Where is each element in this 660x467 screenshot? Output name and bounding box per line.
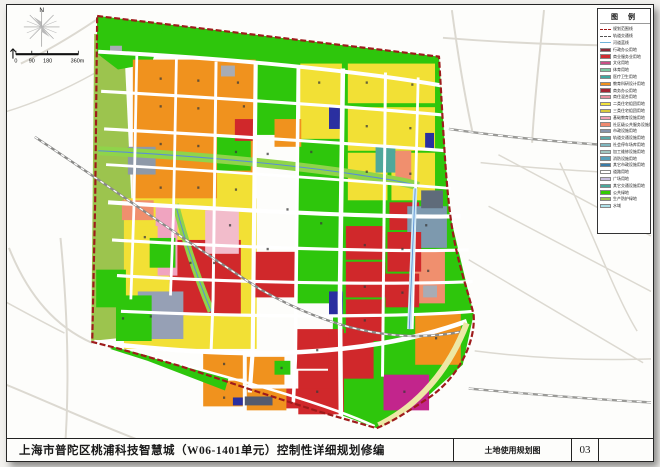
map-feature: 0 [14,59,17,65]
parcel-code-label [267,248,269,250]
parcel-code-label [320,222,322,224]
map-feature [421,190,443,208]
map-feature [61,238,68,456]
legend-item: 商务办公用地 [600,87,650,94]
parcel-code-label [409,127,411,129]
legend-label: 其它市政设施用地 [613,162,645,168]
parcel-code-label [364,244,366,246]
map-feature [423,286,437,298]
legend-swatch [600,54,611,58]
legend-label: 行政办公用地 [613,47,637,53]
legend-items: 规划范围线轨道交通线河道蓝线行政办公用地商业服务业用地文化用地体育用地医疗卫生用… [600,26,650,210]
map-feature [280,389,335,409]
legend-item: 公共绿地 [600,189,650,196]
parcel-code-label [237,81,239,83]
legend-item: 市政设施用地 [600,128,650,135]
legend-label: 广场用地 [613,176,629,182]
map-feature [469,260,643,363]
legend-swatch [600,68,611,72]
parcel-code-label [267,153,269,155]
legend-swatch [600,197,611,201]
map-feature [116,295,152,341]
legend-label: 道路用地 [613,169,629,175]
legend-swatch [600,82,611,86]
parcel-code-label [160,143,162,145]
sheet-number: 03 [571,439,598,461]
map-feature [328,333,374,379]
legend-item: 道路用地 [600,169,650,176]
legend-item: 社会停车场库用地 [600,142,650,149]
map-feature [9,248,92,343]
legend-swatch [600,36,611,37]
map-feature [7,383,155,446]
map-feature [346,262,386,298]
legend-label: 社区级公共服务设施用地 [613,122,651,128]
map-feature: N [39,7,44,14]
map-feature: 180 [43,59,52,65]
legend-item: 加工维修设施用地 [600,148,650,155]
legend-label: 教育科研设计用地 [613,81,645,87]
parcel-code-label [425,224,427,226]
legend-swatch [600,163,611,167]
parcel-code-label [366,171,368,173]
legend-label: 消防设施用地 [613,156,637,162]
legend-label: 市政设施用地 [613,128,637,134]
map-feature [233,397,243,405]
legend-item: 轨道交通设施用地 [600,135,650,142]
legend-item: 基础教育设施用地 [600,114,650,121]
legend-swatch [600,42,611,43]
legend-swatch [600,156,611,160]
legend-item: 商业服务业用地 [600,53,650,60]
legend-label: 社会停车场库用地 [613,142,645,148]
sheet-name: 土地使用规划图 [453,439,571,461]
legend-label: 其它交通设施用地 [613,183,645,189]
parcel-code-label [223,396,225,398]
parcel-code-label [144,236,146,238]
legend-swatch [600,143,611,147]
legend-item: 文化用地 [600,60,650,67]
parcel-code-label [411,83,413,85]
parcel-code-label [160,186,162,188]
map-feature [340,69,343,421]
legend-swatch [600,184,611,188]
legend-swatch [600,48,611,52]
parcel-code-label [427,270,429,272]
legend-swatch [600,102,611,106]
map-feature: 360m [71,59,85,65]
legend-label: 商住混合用地 [613,95,637,101]
parcel-code-label [189,262,191,264]
project-title: 上海市普陀区桃浦科技智慧城（W06-1401单元）控制性详细规划修编 [7,439,453,461]
legend-label: 商业服务业用地 [613,54,641,60]
parcel-code-label [213,262,215,264]
landuse-map: N090180360m [7,5,653,461]
legend-swatch [600,129,611,133]
legend-item: 教育科研设计用地 [600,80,650,87]
legend-swatch [600,95,611,99]
legend-item: 消防设施用地 [600,155,650,162]
legend-label: 二类住宅组团用地 [613,101,645,107]
map-feature [7,299,64,333]
legend-swatch [600,75,611,79]
map-feature [10,49,15,59]
legend-swatch [600,150,611,154]
title-bar: 上海市普陀区桃浦科技智慧城（W06-1401单元）控制性详细规划修编 土地使用规… [7,438,653,461]
map-feature [532,10,544,143]
parcel-code-label [401,291,403,293]
legend-item: 水域 [600,203,650,210]
legend-item: 医疗卫生用地 [600,74,650,81]
legend-item: 广场用地 [600,176,650,183]
legend-item: 二类住宅组团用地 [600,101,650,108]
legend-swatch [600,61,611,65]
map-feature [469,389,651,403]
legend-label: 公共绿地 [613,190,629,196]
legend-label: 轨道交通线 [613,33,633,39]
legend-item: 生产防护绿地 [600,196,650,203]
map-feature: 90 [29,59,35,65]
parcel-code-label [235,151,237,153]
legend-item: 轨道交通线 [600,33,650,40]
map-feature [425,133,434,150]
title-bar-blank-cell [598,439,653,461]
legend-label: 生产防护绿地 [613,196,637,202]
legend-swatch [600,177,611,181]
legend-item: 其它市政设施用地 [600,162,650,169]
map-feature [346,226,386,260]
parcel-code-label [364,319,366,321]
legend-swatch [600,190,611,194]
parcel-code-label [197,145,199,147]
map-feature [329,107,340,129]
legend-label: 加工维修设施用地 [613,149,645,155]
parcel-code-label [197,186,199,188]
parcel-code-label [280,367,282,369]
parcel-code-label [197,79,199,81]
legend-item: 社区级公共服务设施用地 [600,121,650,128]
legend-swatch [600,204,611,208]
legend-item: 行政办公用地 [600,46,650,53]
legend-item: 三类住宅组团用地 [600,108,650,115]
map-feature [217,173,253,203]
parcel-code-label [403,391,405,393]
parcel-code-label [229,224,231,226]
legend-label: 水域 [613,203,621,209]
parcel-code-label [286,208,288,210]
map-feature [7,73,94,113]
parcel-code-label [409,173,411,175]
legend-label: 医疗卫生用地 [613,74,637,80]
parcel-code-label [197,107,199,109]
plan-sheet: N090180360m 图 例 规划范围线轨道交通线河道蓝线行政办公用地商业服务… [6,4,654,462]
map-feature [452,10,473,133]
parcel-code-label [122,317,124,319]
legend-label: 体育用地 [613,67,629,73]
parcel-code-label [235,188,237,190]
legend-title: 图 例 [600,12,650,24]
map-feature [21,20,96,64]
parcel-code-label [435,337,437,339]
legend-swatch [600,88,611,92]
parcel-code-label [366,81,368,83]
legend-label: 商务办公用地 [613,88,637,94]
parcel-code-label [223,363,225,365]
legend-swatch [600,29,611,30]
legend-panel: 图 例 规划范围线轨道交通线河道蓝线行政办公用地商业服务业用地文化用地体育用地医… [597,8,651,234]
legend-item: 河道蓝线 [600,40,650,47]
legend-label: 河道蓝线 [613,40,629,46]
legend-item: 规划范围线 [600,26,650,33]
map-feature [245,396,273,405]
parcel-code-label [160,77,162,79]
map-feature [395,151,411,181]
legend-swatch [600,136,611,140]
parcel-code-label [310,151,312,153]
parcel-code-label [318,81,320,83]
legend-item: 商住混合用地 [600,94,650,101]
parcel-code-label [243,105,245,107]
legend-label: 轨道交通设施用地 [613,135,645,141]
map-feature [221,66,235,77]
legend-label: 规划范围线 [613,27,633,33]
legend-swatch [600,116,611,120]
parcel-code-label [316,391,318,393]
parcel-code-label [366,125,368,127]
parcel-code-label [150,315,152,317]
legend-item: 体育用地 [600,67,650,74]
legend-label: 文化用地 [613,61,629,67]
parcel-code-label [316,349,318,351]
legend-swatch [600,122,611,126]
parcel-code-label [364,286,366,288]
screenshot-root: { "title_bar": { "project_title": "上海市普陀… [0,0,660,467]
legend-item: 其它交通设施用地 [600,182,650,189]
legend-swatch [600,109,611,113]
legend-swatch [600,170,611,174]
legend-label: 基础教育设施用地 [613,115,645,121]
parcel-code-label [401,248,403,250]
legend-label: 三类住宅组团用地 [613,108,645,114]
parcel-code-label [160,105,162,107]
